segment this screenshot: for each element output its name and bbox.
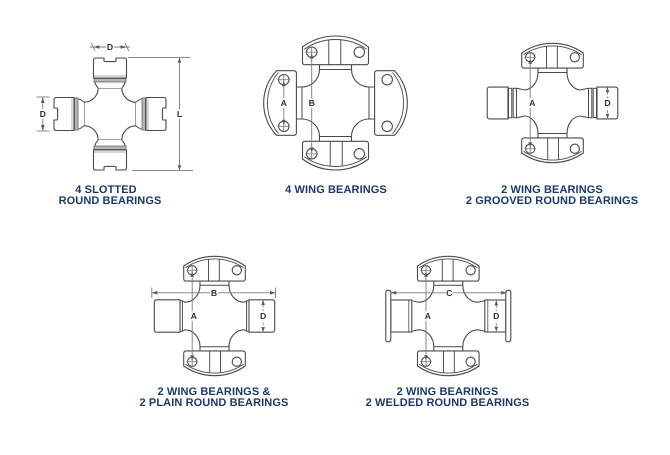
svg-text:D: D	[260, 311, 266, 321]
svg-text:B: B	[211, 288, 217, 298]
svg-text:B: B	[309, 98, 315, 108]
svg-text:A: A	[425, 311, 432, 321]
svg-text:D: D	[107, 42, 113, 52]
svg-text:L: L	[177, 109, 183, 119]
svg-text:A: A	[191, 311, 198, 321]
svg-text:A: A	[281, 98, 288, 108]
svg-text:C: C	[446, 288, 453, 298]
svg-text:D: D	[40, 109, 46, 119]
svg-text:D: D	[493, 311, 499, 321]
svg-text:D: D	[604, 98, 610, 108]
svg-text:A: A	[529, 98, 536, 108]
